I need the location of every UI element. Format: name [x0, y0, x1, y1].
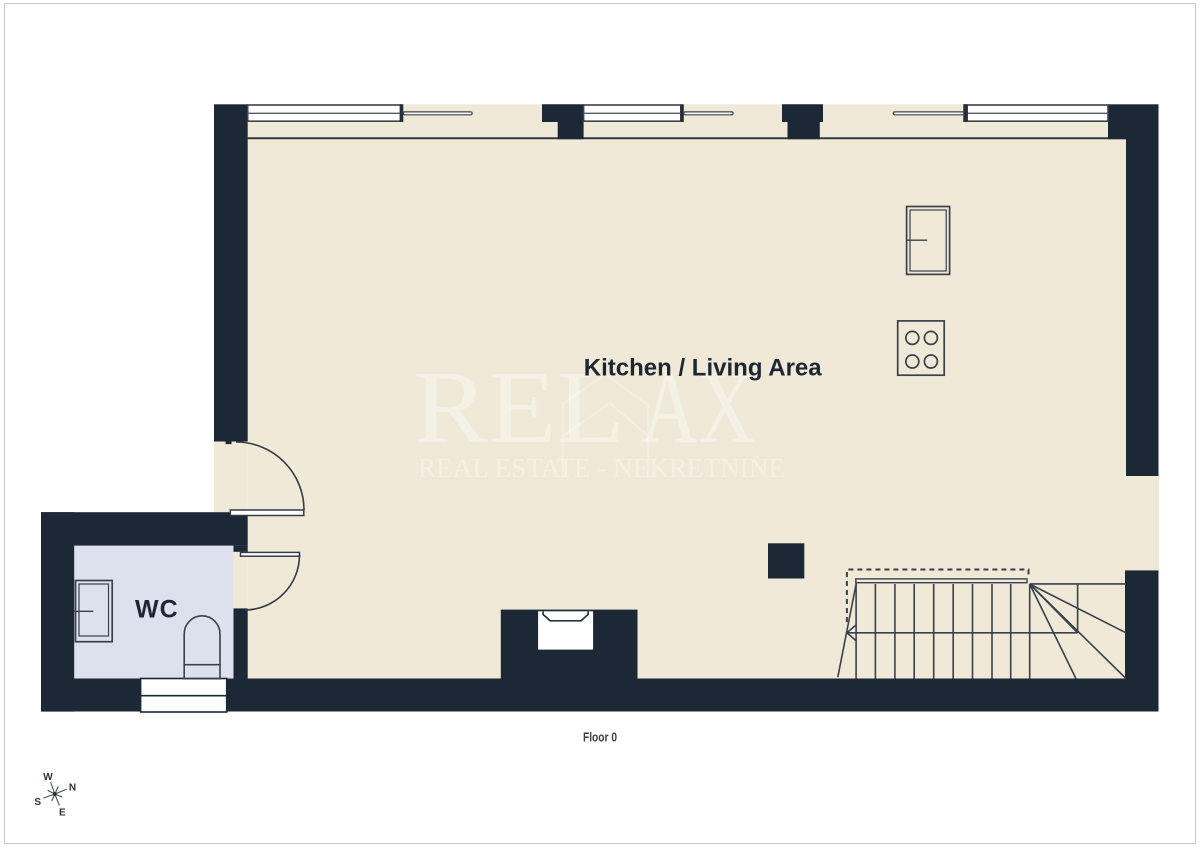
- svg-text:WC: WC: [135, 596, 179, 624]
- svg-text:E: E: [59, 808, 66, 819]
- svg-text:Floor 0: Floor 0: [583, 730, 617, 745]
- svg-text:Kitchen / Living Area: Kitchen / Living Area: [584, 354, 822, 381]
- svg-text:N: N: [69, 783, 76, 794]
- svg-text:S: S: [34, 797, 41, 808]
- svg-text:REAL ESTATE - NEKRETNINE: REAL ESTATE - NEKRETNINE: [418, 453, 785, 483]
- svg-text:W: W: [43, 772, 53, 783]
